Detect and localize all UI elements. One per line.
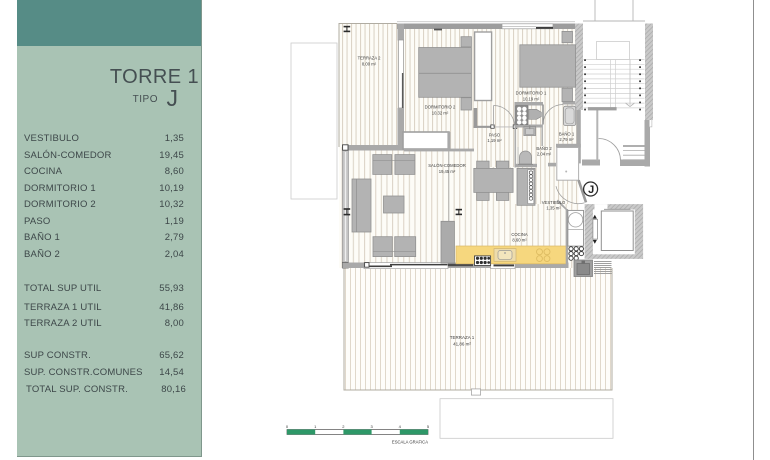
svg-text:ESCALA GRAFICA: ESCALA GRAFICA	[392, 440, 428, 445]
svg-text:DORMITORIO 2: DORMITORIO 2	[425, 105, 456, 110]
svg-text:COCINA: COCINA	[511, 232, 527, 237]
svg-text:8,00 m²: 8,00 m²	[362, 62, 377, 67]
svg-text:PASO: PASO	[489, 133, 501, 138]
svg-text:BAÑO 2: BAÑO 2	[536, 146, 552, 151]
svg-text:3: 3	[370, 424, 373, 429]
svg-text:2,79 m²: 2,79 m²	[559, 137, 574, 142]
svg-text:SALÓN-COMEDOR: SALÓN-COMEDOR	[428, 163, 465, 168]
svg-text:10,19 m²: 10,19 m²	[523, 97, 540, 102]
svg-text:41,86 m²: 41,86 m²	[453, 342, 471, 347]
svg-text:1: 1	[314, 424, 317, 429]
svg-text:1,19 m²: 1,19 m²	[487, 138, 502, 143]
svg-text:TERRAZA 2: TERRAZA 2	[358, 56, 381, 61]
svg-text:10,32 m²: 10,32 m²	[432, 111, 449, 116]
svg-text:8,60 m²: 8,60 m²	[512, 238, 527, 243]
svg-text:VESTIBULO: VESTIBULO	[542, 200, 566, 205]
svg-text:2,04 m²: 2,04 m²	[537, 152, 552, 157]
svg-text:4: 4	[399, 424, 402, 429]
svg-text:J: J	[588, 184, 594, 196]
svg-text:1,35 m²: 1,35 m²	[546, 206, 561, 211]
svg-text:19,45 m²: 19,45 m²	[439, 169, 456, 174]
svg-text:5: 5	[427, 424, 430, 429]
svg-text:0: 0	[286, 424, 289, 429]
svg-text:DORMITORIO 1: DORMITORIO 1	[516, 91, 547, 96]
svg-text:TERRAZA 1: TERRAZA 1	[450, 335, 475, 340]
svg-text:BAÑO 1: BAÑO 1	[559, 132, 575, 137]
svg-text:2: 2	[342, 424, 345, 429]
